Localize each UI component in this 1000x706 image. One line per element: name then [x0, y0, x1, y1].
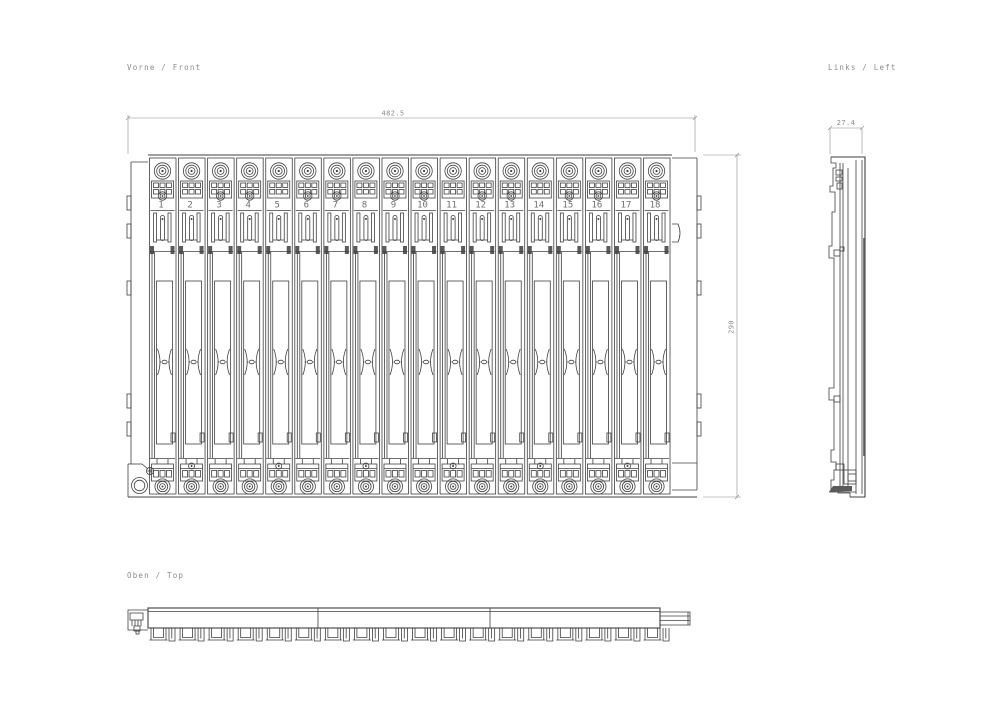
bus-connector-top	[353, 628, 379, 641]
slot-number: 18	[650, 201, 661, 211]
bus-connector-top	[585, 628, 611, 641]
bus-connector-top	[237, 628, 263, 641]
backplane-strip	[592, 281, 608, 444]
strip-latch	[511, 360, 516, 364]
bus-connector-top	[614, 628, 640, 641]
strip-latch	[162, 360, 167, 364]
strip-latch	[423, 360, 428, 364]
slot-module: 13	[498, 158, 524, 494]
bus-connector-top	[644, 628, 670, 641]
bottom-connector-block	[152, 464, 174, 481]
backplane-strip	[621, 281, 637, 444]
slot-module: 14	[527, 158, 554, 494]
slot-number: 11	[446, 201, 457, 211]
height-dimension: 290	[703, 153, 741, 499]
slot-number: 13	[504, 201, 515, 211]
slot-number: 4	[245, 201, 250, 211]
slot-number: 5	[275, 201, 280, 211]
slot-module: 10	[411, 158, 438, 494]
bus-connector-top	[527, 628, 553, 641]
bottom-connector-block	[471, 464, 493, 481]
slot-module: 12	[469, 158, 496, 494]
left-view-label: Links / Left	[828, 63, 897, 72]
strip-latch	[365, 360, 370, 364]
slot-module: 1	[150, 158, 177, 494]
strip-latch	[249, 360, 254, 364]
backplane-strip	[215, 281, 231, 444]
backplane-strip	[447, 281, 463, 444]
depth-dimension-value: 27.4	[837, 119, 855, 127]
slot-module: 2	[179, 158, 206, 494]
bus-connector-top	[295, 628, 321, 641]
bus-connector-top	[150, 628, 176, 641]
left-view	[829, 157, 866, 497]
backplane-strip	[360, 281, 376, 444]
bus-connector-top	[440, 628, 466, 641]
bottom-connector-block	[558, 464, 580, 481]
slot-array: 123456789101112131415161718	[150, 158, 671, 494]
strip-latch	[627, 360, 632, 364]
slot-number: 2	[187, 201, 192, 211]
slot-module: 3	[208, 158, 235, 494]
backplane-strip	[302, 281, 318, 444]
strip-latch	[598, 360, 603, 364]
backplane-strip	[273, 281, 289, 444]
top-view	[128, 608, 690, 641]
top-view-left-cap	[128, 610, 148, 634]
slot-module: 5	[266, 158, 293, 494]
slot-module: 15	[556, 158, 583, 494]
bus-connector-top	[179, 628, 205, 641]
bottom-connector-block	[297, 464, 319, 481]
strip-latch	[453, 360, 458, 364]
strip-latch	[220, 360, 225, 364]
right-mounting-rail	[672, 158, 701, 490]
slot-module: 11	[440, 158, 467, 494]
backplane-strip	[476, 281, 492, 444]
din-rail-edge	[863, 238, 865, 456]
bottom-connector-block	[413, 464, 435, 481]
strip-latch	[656, 360, 661, 364]
slot-module: 18	[644, 158, 671, 494]
backplane-strip	[331, 281, 347, 444]
top-rail-body	[148, 608, 660, 628]
slot-module: 9	[382, 158, 409, 494]
bottom-connector-block	[326, 464, 348, 481]
strip-latch	[540, 360, 545, 364]
bus-connector-array	[150, 628, 670, 641]
slot-number: 15	[562, 201, 573, 211]
bus-connector-top	[498, 628, 523, 641]
width-dimension-value: 482.5	[381, 110, 404, 118]
bus-connector-top	[266, 628, 292, 641]
slot-number: 8	[362, 201, 367, 211]
bottom-connector-block	[646, 464, 668, 481]
slot-module: 16	[585, 158, 612, 494]
depth-dimension: 27.4	[828, 119, 864, 154]
backplane-strip	[651, 281, 667, 444]
side-profile	[829, 157, 850, 497]
slot-number: 3	[216, 201, 221, 211]
slot-number: 6	[304, 201, 309, 211]
slot-module: 17	[614, 158, 641, 494]
slot-number: 12	[475, 201, 486, 211]
bus-connector-top	[556, 628, 582, 641]
slot-module: 7	[324, 158, 351, 494]
strip-latch	[482, 360, 487, 364]
cad-drawing: Vorne / Front Links / Left Oben / Top 48…	[0, 0, 1000, 706]
strip-latch	[336, 360, 341, 364]
front-view: 123456789101112131415161718	[127, 155, 701, 497]
slot-module: 4	[237, 158, 264, 494]
front-view-label: Vorne / Front	[127, 63, 201, 72]
backplane-strip	[244, 281, 260, 444]
slot-module: 6	[295, 158, 322, 494]
height-dimension-value: 290	[728, 320, 736, 334]
backplane-strip	[563, 281, 579, 444]
backplane-strip	[418, 281, 434, 444]
slot-module: 8	[353, 158, 380, 494]
strip-latch	[307, 360, 312, 364]
bottom-connector-block	[587, 464, 609, 481]
strip-latch	[569, 360, 574, 364]
bottom-connector-block	[500, 464, 522, 481]
backplane-strip	[389, 281, 405, 444]
bottom-connector-block	[239, 464, 261, 481]
strip-latch	[278, 360, 283, 364]
top-view-right-tail	[660, 612, 690, 625]
slot-number: 16	[591, 201, 602, 211]
slot-number: 9	[391, 201, 396, 211]
bus-connector-top	[469, 628, 495, 641]
bus-connector-top	[411, 628, 437, 641]
slot-number: 17	[621, 201, 632, 211]
slot-number: 10	[417, 201, 428, 211]
top-view-label: Oben / Top	[127, 571, 184, 580]
backplane-strip	[157, 281, 173, 444]
backplane-strip	[186, 281, 202, 444]
drawing-sheet: Vorne / Front Links / Left Oben / Top 48…	[0, 0, 1000, 706]
bottom-connector-block	[210, 464, 232, 481]
backplane-strip	[534, 281, 550, 444]
bottom-connector-block	[384, 464, 406, 481]
width-dimension: 482.5	[126, 110, 697, 155]
strip-latch	[394, 360, 399, 364]
side-fixing-screw	[829, 464, 856, 492]
slot-number: 7	[333, 201, 338, 211]
strip-latch	[191, 360, 196, 364]
slot-number: 14	[533, 201, 544, 211]
slot-number: 1	[158, 201, 163, 211]
bus-connector-top	[324, 628, 350, 641]
bus-connector-top	[208, 628, 234, 641]
backplane-strip	[505, 281, 521, 444]
bus-connector-top	[382, 628, 408, 641]
